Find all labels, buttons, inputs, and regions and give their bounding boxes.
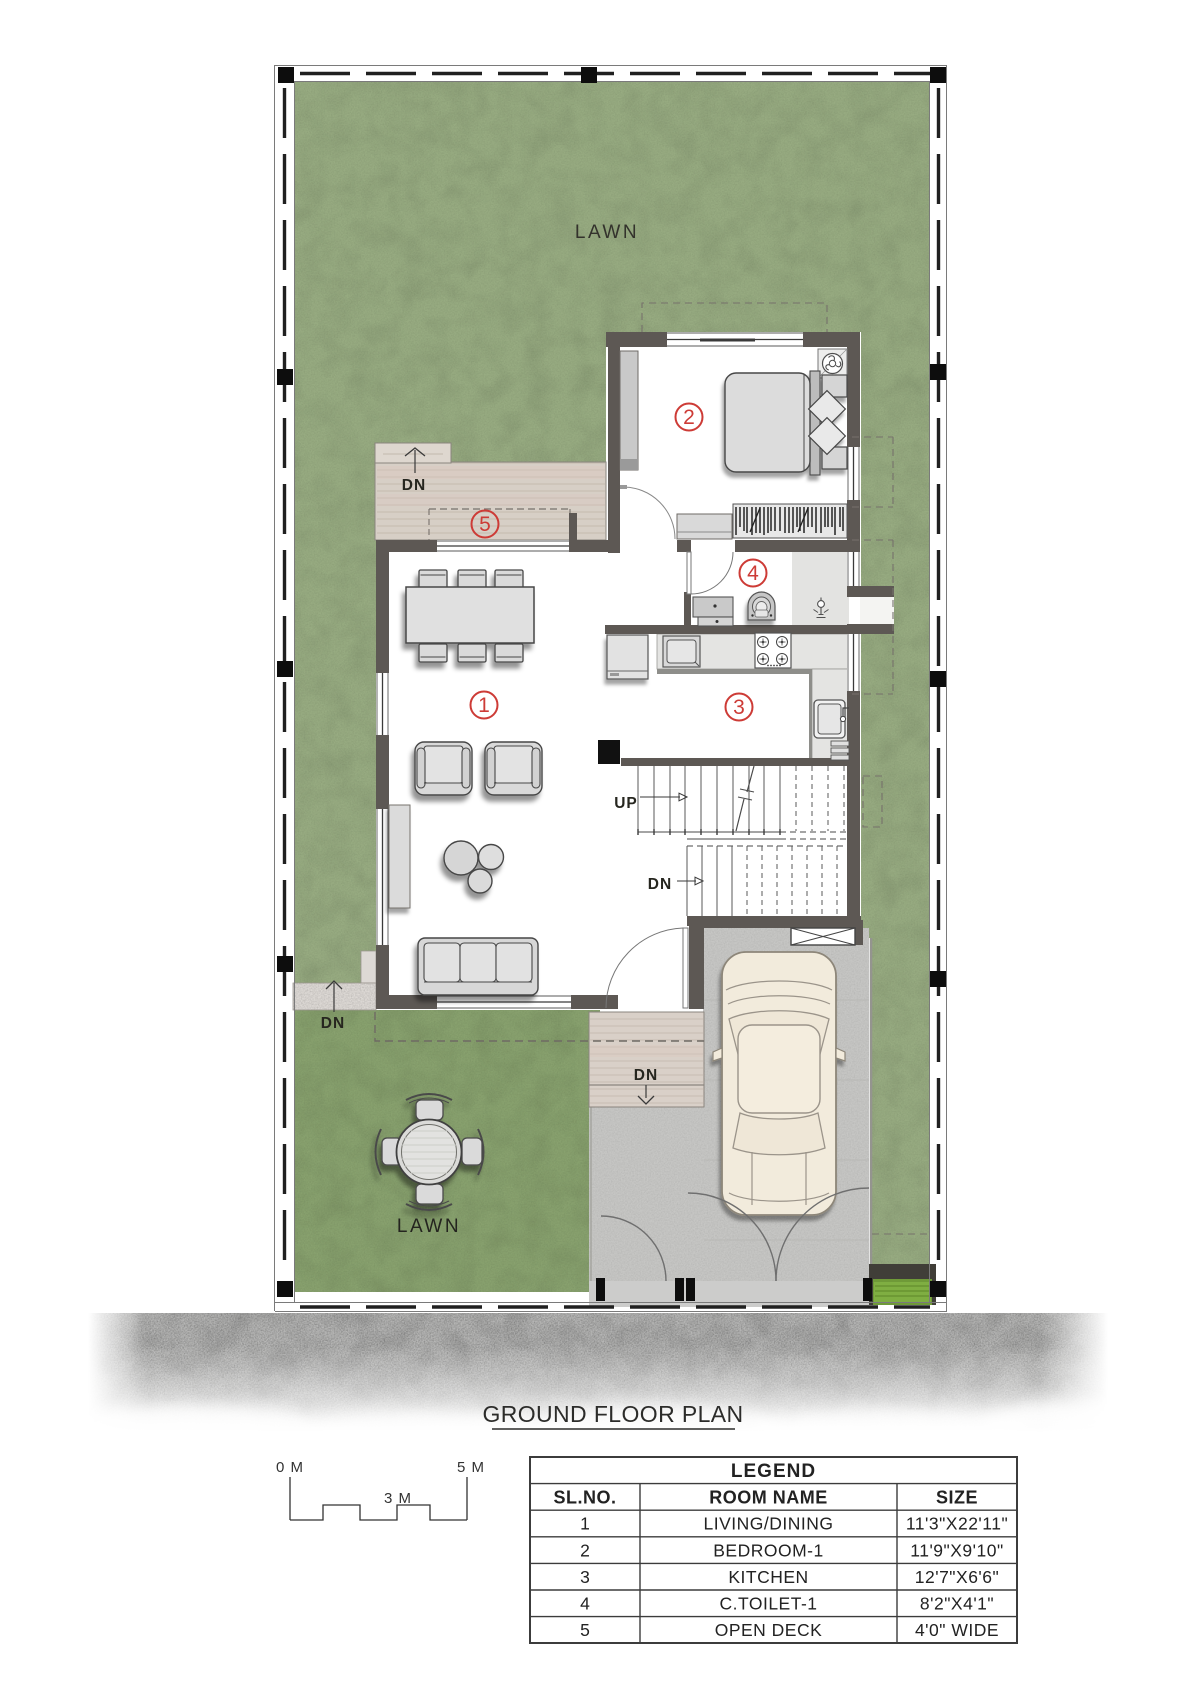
svg-text:DN: DN <box>402 477 426 494</box>
svg-text:11'3"X22'11": 11'3"X22'11" <box>906 1514 1008 1534</box>
svg-text:LEGEND: LEGEND <box>731 1461 816 1482</box>
svg-text:8'2"X4'1": 8'2"X4'1" <box>920 1594 994 1614</box>
svg-text:BEDROOM-1: BEDROOM-1 <box>713 1540 823 1560</box>
svg-text:LIVING/DINING: LIVING/DINING <box>704 1514 834 1534</box>
svg-text:DN: DN <box>634 1067 658 1084</box>
svg-text:12'7"X6'6": 12'7"X6'6" <box>915 1567 999 1587</box>
svg-text:3 M: 3 M <box>384 1490 412 1507</box>
svg-text:GROUND FLOOR PLAN: GROUND FLOOR PLAN <box>482 1401 743 1427</box>
svg-text:C.TOILET-1: C.TOILET-1 <box>719 1594 817 1614</box>
svg-text:SL.NO.: SL.NO. <box>553 1488 616 1508</box>
svg-text:0 M: 0 M <box>276 1459 304 1476</box>
svg-text:DN: DN <box>648 876 672 893</box>
svg-text:UP: UP <box>614 795 638 812</box>
svg-text:2: 2 <box>683 406 695 429</box>
svg-text:3: 3 <box>733 696 745 719</box>
svg-text:LAWN: LAWN <box>575 222 639 243</box>
svg-text:1: 1 <box>478 694 490 717</box>
svg-text:11'9"X9'10": 11'9"X9'10" <box>910 1540 1003 1560</box>
svg-text:LAWN: LAWN <box>397 1216 461 1237</box>
svg-text:4'0" WIDE: 4'0" WIDE <box>915 1620 999 1640</box>
svg-text:5 M: 5 M <box>457 1459 485 1476</box>
svg-text:2: 2 <box>580 1540 590 1560</box>
svg-text:5: 5 <box>479 513 491 536</box>
svg-text:DN: DN <box>321 1015 345 1032</box>
svg-text:KITCHEN: KITCHEN <box>728 1567 808 1587</box>
svg-text:3: 3 <box>580 1567 590 1587</box>
svg-text:5: 5 <box>580 1620 590 1640</box>
svg-text:ROOM NAME: ROOM NAME <box>709 1488 828 1508</box>
svg-text:1: 1 <box>580 1514 590 1534</box>
svg-text:4: 4 <box>747 562 759 585</box>
svg-text:SIZE: SIZE <box>936 1488 978 1508</box>
svg-text:4: 4 <box>580 1594 590 1614</box>
svg-text:OPEN DECK: OPEN DECK <box>715 1620 823 1640</box>
